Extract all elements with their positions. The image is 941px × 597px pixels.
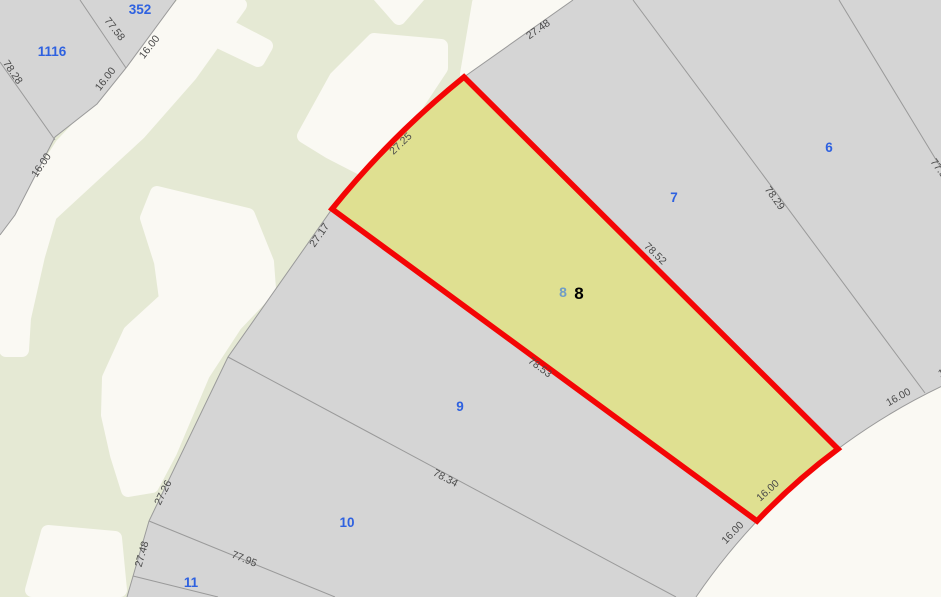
svg-text:10: 10: [339, 515, 354, 530]
svg-text:9: 9: [456, 399, 464, 414]
svg-text:1116: 1116: [38, 44, 67, 59]
svg-text:352: 352: [129, 2, 152, 17]
svg-text:7: 7: [670, 190, 678, 205]
svg-text:8: 8: [574, 284, 583, 303]
svg-text:6: 6: [825, 140, 833, 155]
svg-text:11: 11: [184, 575, 199, 590]
svg-text:8: 8: [559, 284, 567, 300]
